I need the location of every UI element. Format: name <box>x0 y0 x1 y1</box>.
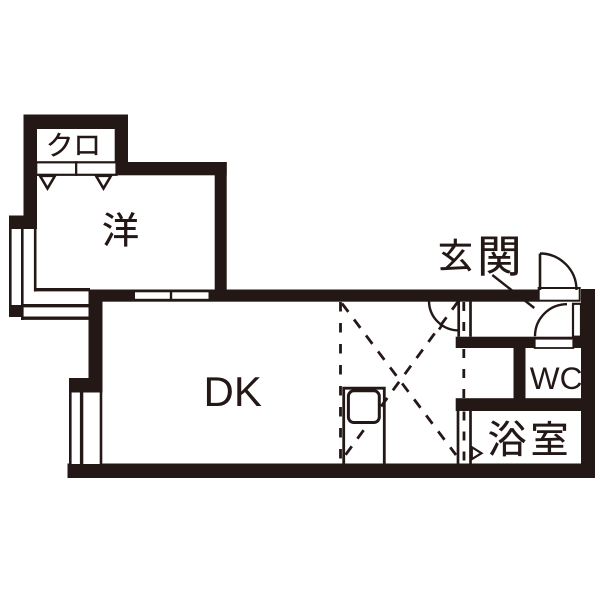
svg-text:DK: DK <box>204 368 262 415</box>
svg-text:WC: WC <box>530 360 583 396</box>
